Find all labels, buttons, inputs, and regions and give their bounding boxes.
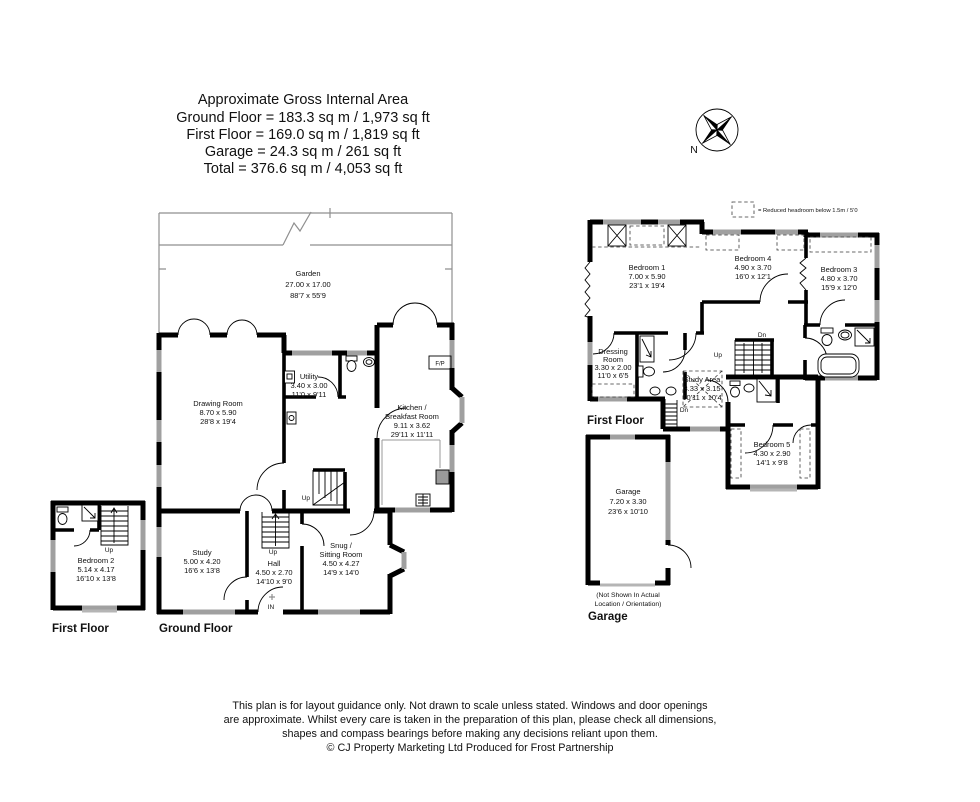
- toilet-bowl-icon: [644, 367, 655, 376]
- bedroom5-name: Bedroom 5: [754, 440, 791, 449]
- sink-icon: [839, 330, 852, 340]
- hall-staircase: [262, 512, 289, 548]
- sink-icon: [666, 387, 676, 395]
- entrance-cross-mark: [269, 594, 275, 600]
- toilet-icon: [638, 366, 643, 377]
- bedroom2-bathroom-fixtures: [57, 505, 98, 525]
- area-summary: Approximate Gross Internal Area Ground F…: [176, 92, 430, 177]
- ensuite-fixtures: [730, 379, 776, 402]
- bedroom1-wardrobes: [608, 225, 686, 246]
- bedroom2-metric: 5.14 x 4.17: [77, 565, 114, 574]
- kitchen-staircase: [313, 470, 345, 505]
- study-area-name: Study Area: [684, 375, 722, 384]
- compass-icon: N: [689, 102, 745, 158]
- reduced-headroom-legend: = Reduced headroom below 1.5m / 5'0: [732, 202, 858, 217]
- copyright-line: © CJ Property Marketing Ltd Produced for…: [327, 742, 614, 754]
- entrance-in-label: IN: [268, 604, 275, 611]
- disclaimer-line-1: This plan is for layout guidance only. N…: [232, 700, 708, 712]
- area-first-floor: First Floor = 169.0 sq m / 1,819 sq ft: [186, 127, 419, 143]
- study-imperial: 16'6 x 13'8: [184, 566, 220, 575]
- first-floor-up-label: Up: [714, 352, 723, 359]
- bedroom1-metric: 7.00 x 5.90: [628, 272, 665, 281]
- snug-name-2: Sitting Room: [320, 550, 363, 559]
- boiler-icon: [287, 412, 296, 424]
- first-floor-dn-label: Dn: [758, 332, 767, 339]
- garden-plot: Garden 27.00 x 17.00 88'7 x 55'9: [159, 208, 452, 333]
- first-floor-label: First Floor: [587, 415, 644, 427]
- garden-dimension-ticks: [159, 208, 452, 269]
- disclaimer-line-3: shapes and compass bearings before makin…: [282, 728, 658, 740]
- kitchen-sink-icon: [436, 470, 449, 484]
- toilet-bowl-icon: [58, 514, 67, 525]
- disclaimer: This plan is for layout guidance only. N…: [224, 700, 717, 754]
- first-floor-small-plan: Up Bedroom 2 5.14 x 4.17 16'10 x 13'8 Fi…: [51, 501, 145, 635]
- study-area-imperial: 10'11 x 10'4: [682, 393, 721, 402]
- first-floor-plan: Bedroom 1 7.00 x 5.90 23'1 x 19'4 Bedroo…: [585, 220, 879, 490]
- study-name: Study: [192, 548, 211, 557]
- main-stairs-treads: [735, 340, 772, 376]
- sink-icon: [650, 387, 660, 395]
- kitchen-metric: 9.11 x 3.62: [394, 421, 431, 430]
- kitchen-counter-line: [382, 440, 440, 505]
- ground-floor-plan: F/P Drawing Room 8.70 x 5.90 28'8 x 19'4…: [157, 303, 462, 635]
- bedroom2-staircase: [101, 506, 128, 545]
- bedroom5-imperial: 14'1 x 9'8: [756, 458, 788, 467]
- study-metric: 5.00 x 4.20: [183, 557, 220, 566]
- fireplace: F/P: [429, 356, 451, 369]
- bedroom1-bow-window: [585, 262, 590, 318]
- bedroom2-door: [74, 530, 90, 546]
- bedroom4-metric: 4.90 x 3.70: [734, 263, 771, 272]
- floorplan-drawing: Approximate Gross Internal Area Ground F…: [0, 0, 980, 802]
- small-down-staircase: [665, 400, 677, 427]
- bedroom4-imperial: 16'0 x 12'1: [735, 272, 771, 281]
- legend-note: = Reduced headroom below 1.5m / 5'0: [758, 208, 858, 214]
- garage-note-1: (Not Shown In Actual: [596, 592, 660, 599]
- shower-room-fixtures: [638, 336, 676, 395]
- area-garage: Garage = 24.3 sq m / 261 sq ft: [205, 144, 401, 160]
- bedroom1-imperial: 23'1 x 19'4: [629, 281, 665, 290]
- garage-label: Garage: [588, 611, 628, 623]
- utility-name: Utility: [300, 372, 319, 381]
- bedroom5-metric: 4.30 x 2.90: [753, 449, 790, 458]
- toilet-bowl-icon: [347, 361, 356, 372]
- garden-name: Garden: [295, 269, 320, 278]
- drawing-room-imperial: 28'8 x 19'4: [200, 417, 236, 426]
- garden-metric: 27.00 x 17.00: [285, 280, 330, 289]
- kitchen-imperial: 29'11 x 11'11: [391, 430, 433, 439]
- small-stairs-treads: [665, 400, 677, 427]
- garage-imperial: 23'6 x 10'10: [608, 507, 648, 516]
- toilet-icon: [57, 507, 68, 512]
- area-total: Total = 376.6 sq m / 4,053 sq ft: [204, 161, 403, 177]
- hall-imperial: 14'10 x 9'0: [256, 577, 292, 586]
- garden-break-line: [283, 212, 311, 245]
- north-label: N: [690, 144, 698, 156]
- hall-stairs-treads: [262, 512, 289, 548]
- garage-door-arc: [668, 545, 691, 568]
- garage-metric: 7.20 x 3.30: [609, 497, 646, 506]
- hall-name: Hall: [268, 559, 281, 568]
- bedroom3-metric: 4.80 x 3.70: [820, 274, 857, 283]
- bedroom4-closet-door: [800, 258, 806, 290]
- garage-plan: Garage 7.20 x 3.30 23'6 x 10'10 (Not Sho…: [586, 435, 691, 623]
- ground-wc-fixtures: [346, 356, 375, 372]
- garage-note-2: Location / Orientation): [595, 601, 662, 608]
- toilet-bowl-icon: [731, 387, 740, 397]
- family-bathroom-fixtures: [818, 328, 874, 377]
- ground-floor-label: Ground Floor: [159, 623, 233, 635]
- area-summary-title: Approximate Gross Internal Area: [198, 92, 409, 108]
- bedroom3-imperial: 15'9 x 12'0: [821, 283, 857, 292]
- utility-metric: 3.40 x 3.00: [290, 381, 327, 390]
- snug-imperial: 14'9 x 14'0: [323, 568, 359, 577]
- disclaimer-line-2: are approximate. Whilst every care is ta…: [224, 714, 717, 726]
- toilet-bowl-icon: [822, 335, 832, 346]
- small-stairs-dn-label: Dn: [680, 407, 689, 414]
- hall-up-label: Up: [269, 549, 278, 556]
- study-area-metric: 3.33 x 3.15: [683, 384, 720, 393]
- toilet-icon: [730, 381, 740, 386]
- area-ground-floor: Ground Floor = 183.3 sq m / 1,973 sq ft: [176, 110, 430, 126]
- snug-name-1: Snug /: [330, 541, 353, 550]
- drawing-room-metric: 8.70 x 5.90: [199, 408, 236, 417]
- utility-imperial: 11'0 x 9'11: [292, 390, 327, 399]
- kitchen-stairs-treads: [313, 470, 345, 505]
- dressing-room-imperial: 11'0 x 6'5: [597, 371, 628, 380]
- bedroom2-up-label: Up: [105, 547, 114, 554]
- snug-metric: 4.50 x 4.27: [322, 559, 359, 568]
- sink-icon: [744, 384, 754, 392]
- bedroom1-name: Bedroom 1: [629, 263, 666, 272]
- kitchen-counters: [382, 440, 449, 506]
- kitchen-stairs-up-label: Up: [302, 495, 311, 502]
- fireplace-label: F/P: [435, 362, 444, 368]
- hall-metric: 4.50 x 2.70: [255, 568, 292, 577]
- kitchen-name-2: Breakfast Room: [385, 412, 439, 421]
- drawing-room-name: Drawing Room: [193, 399, 243, 408]
- floorplan-page: Approximate Gross Internal Area Ground F…: [0, 0, 980, 802]
- bedroom3-name: Bedroom 3: [821, 265, 858, 274]
- main-staircase: [735, 340, 772, 376]
- bedroom2-stairs-treads: [101, 506, 128, 545]
- kitchen-name-1: Kitchen /: [397, 403, 427, 412]
- bedroom2-name: Bedroom 2: [78, 556, 115, 565]
- sink-icon: [364, 358, 375, 367]
- first-floor-small-label: First Floor: [52, 623, 109, 635]
- bedroom2-imperial: 16'10 x 13'8: [76, 574, 116, 583]
- toilet-icon: [821, 328, 833, 333]
- bedroom4-name: Bedroom 4: [735, 254, 772, 263]
- garden-imperial: 88'7 x 55'9: [290, 291, 326, 300]
- garage-name: Garage: [615, 487, 640, 496]
- legend-swatch: [732, 202, 754, 217]
